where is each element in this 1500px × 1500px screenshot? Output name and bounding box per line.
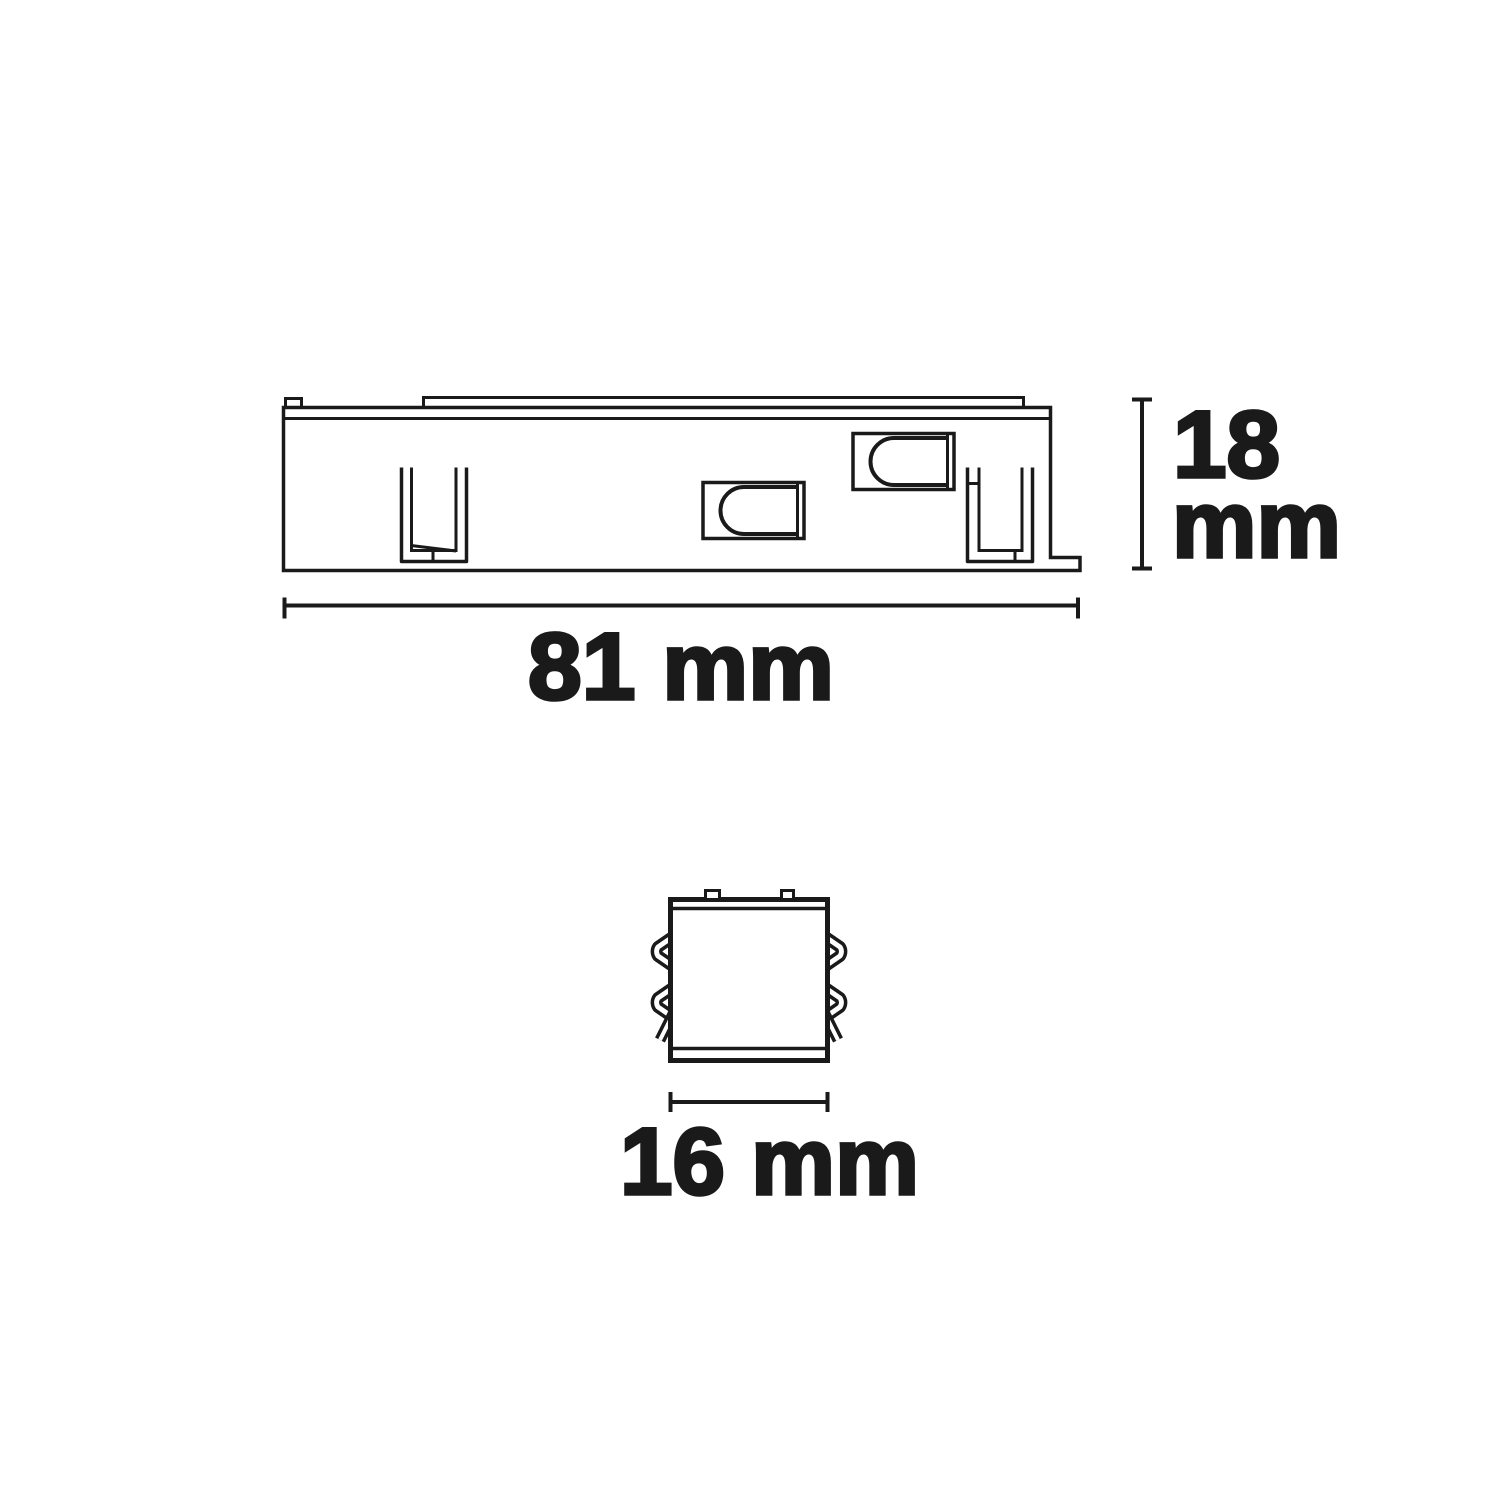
svg-text:81 mm: 81 mm — [528, 614, 834, 720]
svg-text:16 mm: 16 mm — [620, 1109, 919, 1215]
svg-text:mm: mm — [1172, 472, 1341, 578]
